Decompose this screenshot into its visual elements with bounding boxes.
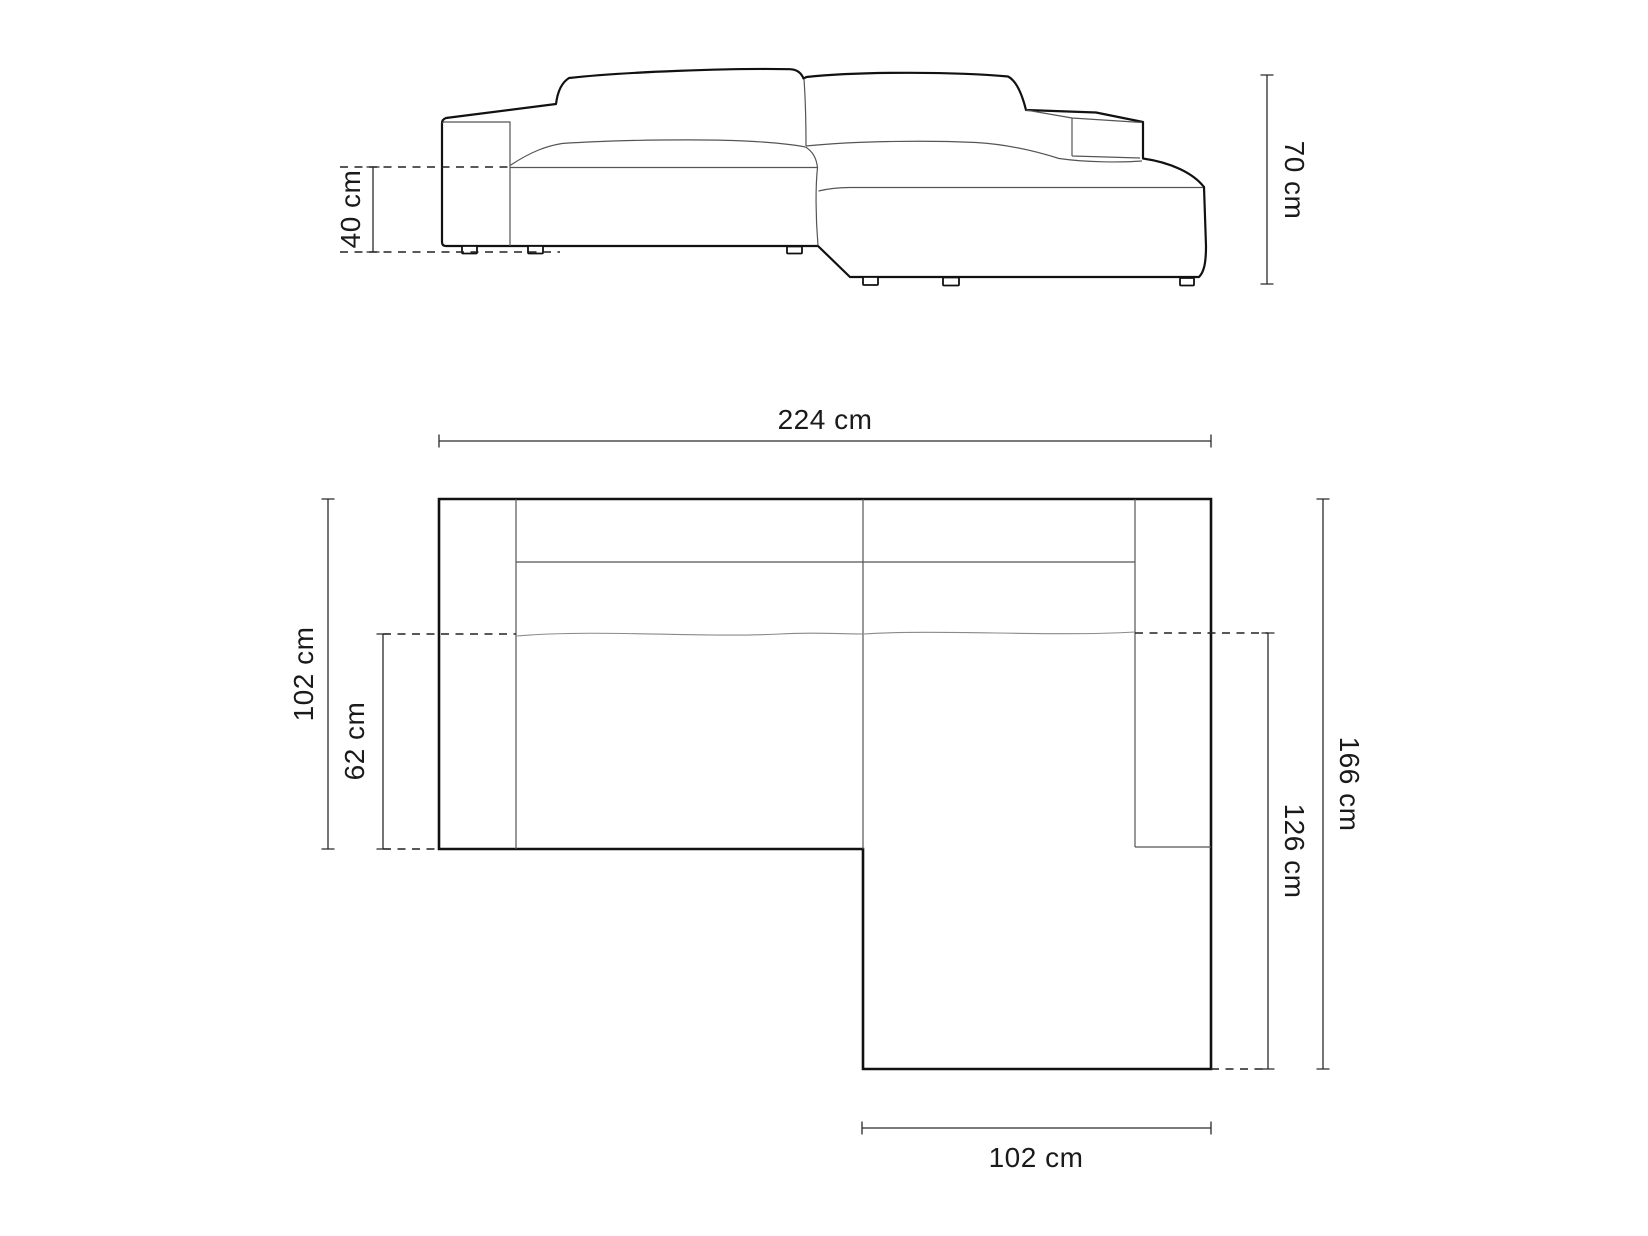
right-armrest-line bbox=[1135, 499, 1211, 847]
chaise-top-edge bbox=[819, 188, 1204, 192]
left-depth-label: 102 cm bbox=[288, 627, 319, 722]
seat-cushion-curve bbox=[510, 140, 806, 166]
left-depth-dimension-line bbox=[322, 499, 335, 849]
total-depth-dimension-line bbox=[1317, 499, 1330, 1069]
sofa-silhouette bbox=[442, 69, 1206, 277]
sofa-foot bbox=[1180, 278, 1194, 286]
sofa-feet bbox=[462, 246, 1194, 286]
elevation-thick-lines bbox=[442, 69, 1206, 286]
chaise-depth-label: 126 cm bbox=[1279, 804, 1310, 899]
front-elevation-view: 40 cm 70 cm bbox=[335, 69, 1310, 286]
top-plan-view: 224 cm 102 cm 62 cm 166 cm 126 cm 102 cm bbox=[288, 404, 1365, 1173]
dimension-diagram-page: 40 cm 70 cm bbox=[0, 0, 1648, 1236]
total-height-dimension-line bbox=[1261, 75, 1274, 284]
seat-front-curve bbox=[516, 632, 1135, 636]
sofa-foot bbox=[943, 278, 959, 286]
total-depth-label: 166 cm bbox=[1334, 737, 1365, 832]
chaise-seat-curve bbox=[806, 141, 1142, 162]
seat-height-label: 40 cm bbox=[335, 170, 366, 249]
chaise-side-edge bbox=[806, 147, 819, 246]
dimension-diagram: 40 cm 70 cm bbox=[0, 0, 1648, 1236]
armrest-front-edge bbox=[442, 122, 510, 246]
seat-depth-dimension-line bbox=[377, 634, 390, 849]
seat-height-dimension-line bbox=[367, 167, 380, 252]
plan-outline bbox=[439, 499, 1211, 1069]
elevation-dimensions: 40 cm 70 cm bbox=[335, 75, 1310, 284]
total-width-dimension-line bbox=[439, 435, 1211, 448]
chaise-width-label: 102 cm bbox=[989, 1142, 1084, 1173]
seat-depth-label: 62 cm bbox=[339, 702, 370, 781]
total-height-label: 70 cm bbox=[1279, 141, 1310, 220]
back-cushion-divider bbox=[804, 79, 806, 146]
sofa-foot bbox=[863, 277, 878, 285]
plan-outline-group bbox=[439, 499, 1211, 1069]
sofa-foot bbox=[787, 247, 802, 254]
total-width-label: 224 cm bbox=[778, 404, 873, 435]
chaise-depth-dimension-line bbox=[1262, 633, 1275, 1069]
plan-dimensions: 224 cm 102 cm 62 cm 166 cm 126 cm 102 cm bbox=[288, 404, 1365, 1173]
plan-seat-lines bbox=[516, 632, 1135, 636]
chaise-width-dimension-line bbox=[862, 1122, 1211, 1135]
plan-interior-lines bbox=[516, 499, 1211, 849]
